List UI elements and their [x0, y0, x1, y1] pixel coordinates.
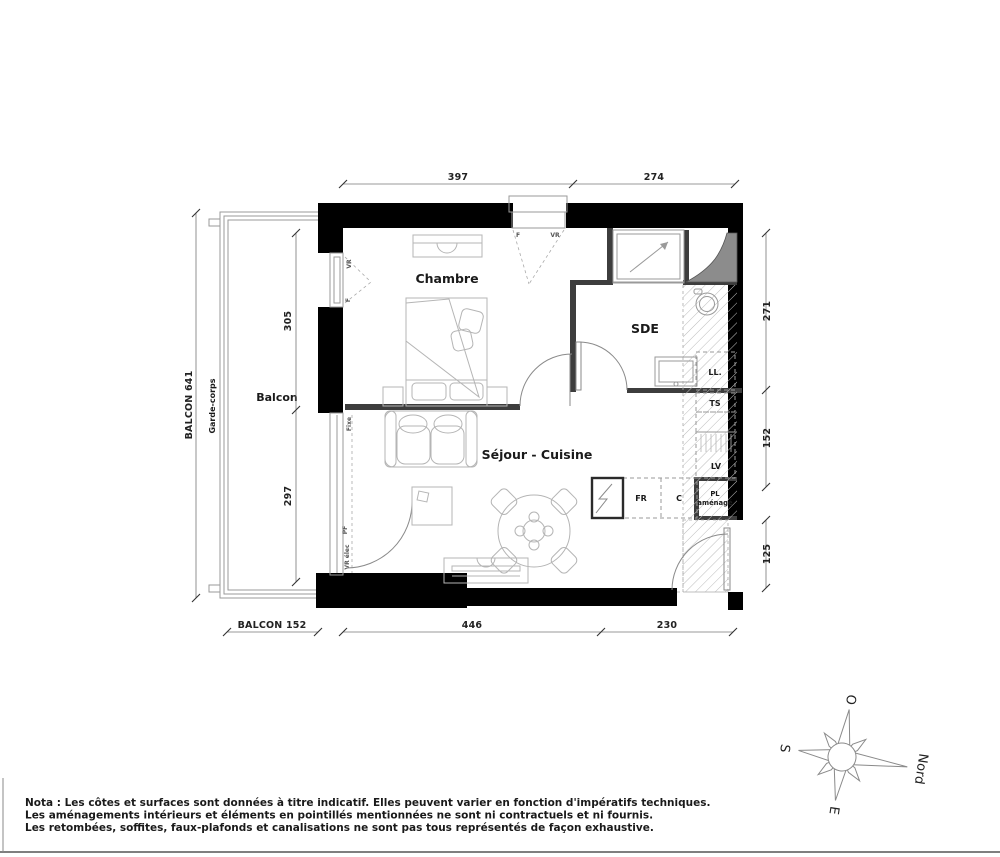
- duct-shaft: [686, 233, 737, 282]
- interior-walls: [345, 228, 742, 520]
- compass-east-label: E: [825, 805, 841, 815]
- dining-table: [498, 495, 570, 567]
- compass-west-label: O: [842, 693, 858, 705]
- bed-pillow-1: [412, 383, 446, 400]
- coffee-table-item: [417, 491, 429, 502]
- balcony-label: Balcon: [256, 391, 298, 404]
- compass-north-label: Nord: [911, 752, 930, 785]
- notes-block: Nota : Les côtes et surfaces sont donnée…: [25, 797, 710, 834]
- coffee-table: [412, 487, 452, 525]
- sejour-furniture: [385, 411, 579, 583]
- chambre-door-arc: [520, 354, 572, 406]
- dim-top-1: 397: [448, 172, 468, 183]
- dining-chairs: [489, 487, 579, 575]
- dim-right-2: 152: [762, 428, 773, 448]
- sejour-window-fixe-label: Fixe: [346, 417, 353, 431]
- bed-pillow-2: [450, 383, 483, 400]
- chambre-furniture: [383, 235, 507, 406]
- sde-label: SDE: [631, 321, 659, 336]
- sde-door-arc: [579, 342, 627, 390]
- wall-top-left: [318, 203, 513, 228]
- top-window-outer: [509, 196, 567, 212]
- top-window-inner: [512, 212, 565, 228]
- wall-right-bottom: [728, 592, 743, 610]
- dim-balcony-total: BALCON 641: [184, 371, 195, 440]
- balcony-door-arc: [346, 502, 412, 568]
- dim-right-1: 271: [762, 301, 773, 321]
- balcony: Balcon Garde-corps: [208, 212, 318, 598]
- nightstand-right: [487, 387, 507, 406]
- chambre-window-vr-label: VR: [346, 259, 353, 269]
- wall-sde-west: [570, 280, 576, 392]
- wall-left-a: [318, 203, 343, 253]
- sde-door-leaf: [576, 342, 581, 390]
- floor-plan-svg: Balcon Garde-corps LL. TS: [0, 0, 1000, 857]
- sofa-arm-right: [466, 411, 477, 467]
- shower-arrowhead: [660, 242, 668, 250]
- wall-bottom-right: [467, 588, 677, 606]
- note-line-3: Les retombées, soffites, faux-plafonds e…: [25, 822, 654, 834]
- balcony-railing-inner: [228, 220, 318, 590]
- washing-machine-label: LL.: [708, 368, 721, 377]
- shower: [613, 230, 684, 283]
- sejour-window-pf-label: PF: [342, 526, 349, 535]
- dining-chair-2: [549, 487, 579, 517]
- dining-table-decor: [515, 512, 553, 550]
- dining-chair-4: [549, 545, 579, 575]
- balcony-railing-outer: [220, 212, 318, 598]
- cooking-label: C: [676, 494, 682, 503]
- sofa-backpillow-2: [434, 415, 462, 433]
- compass-south-label: S: [776, 743, 792, 753]
- ts-label: TS: [709, 399, 720, 408]
- shower-inner: [617, 234, 680, 279]
- dim-balcony-upper: 305: [283, 311, 294, 331]
- balcony-tab-bottom: [209, 585, 220, 592]
- dim-balcony-width: BALCON 152: [238, 620, 307, 631]
- dim-balcony-lower: 297: [283, 486, 294, 506]
- compass-rose: Nord S O E: [768, 685, 937, 828]
- wall-duct-divider: [684, 230, 689, 282]
- chambre-window: [330, 253, 343, 307]
- balcony-tab-top: [209, 219, 220, 226]
- chambre-label: Chambre: [415, 271, 478, 286]
- top-window-vr-label: VR: [550, 232, 560, 239]
- wall-top-right: [566, 203, 742, 228]
- kitchen-column: LL. TS LV FR C PL aménagé: [592, 285, 737, 592]
- chambre-window-f-label: F: [345, 298, 352, 302]
- sejour-window-vrelec-label: VR élec: [344, 544, 351, 570]
- dresser: [413, 235, 482, 257]
- balcony-railing-mid: [224, 216, 318, 594]
- note-line-1: Nota : Les côtes et surfaces sont donnée…: [25, 797, 710, 809]
- dim-bottom-2: 230: [657, 620, 678, 631]
- closet-label-2: aménagé: [697, 499, 733, 507]
- room-labels: Chambre SDE Séjour - Cuisine: [415, 271, 659, 462]
- wall-chambre-east: [607, 228, 613, 283]
- closet-label-1: PL: [710, 490, 720, 498]
- washbasin-tap: [674, 382, 678, 386]
- wall-sde-jog: [570, 280, 613, 285]
- floor-plan-page: Balcon Garde-corps LL. TS: [0, 0, 1000, 857]
- dishwasher-label: LV: [711, 462, 722, 471]
- wall-left-b: [318, 307, 343, 413]
- bed-duvet-fold: [406, 299, 479, 397]
- nightstand-left: [383, 387, 403, 406]
- sofa-cushion-1: [397, 426, 430, 464]
- dim-right-3: 125: [762, 544, 773, 564]
- sofa-cushion-2: [431, 426, 464, 464]
- dim-top-2: 274: [644, 172, 665, 183]
- sejour-cuisine-label: Séjour - Cuisine: [482, 447, 593, 462]
- garde-corps-label: Garde-corps: [208, 378, 217, 433]
- sofa-arm-left: [385, 411, 396, 467]
- dresser-bowl: [437, 243, 457, 253]
- technical-hatch-area: [683, 285, 737, 592]
- note-line-2: Les aménagements intérieurs et éléments …: [25, 810, 653, 822]
- top-window-f-label: F: [516, 232, 520, 239]
- sofa-backpillow-1: [399, 415, 427, 433]
- wall-chambre-sejour: [345, 404, 520, 410]
- fridge-label: FR: [635, 494, 647, 503]
- dim-bottom-1: 446: [462, 620, 483, 631]
- dining-chair-1: [489, 487, 519, 517]
- chambre-window-glass: [334, 257, 340, 303]
